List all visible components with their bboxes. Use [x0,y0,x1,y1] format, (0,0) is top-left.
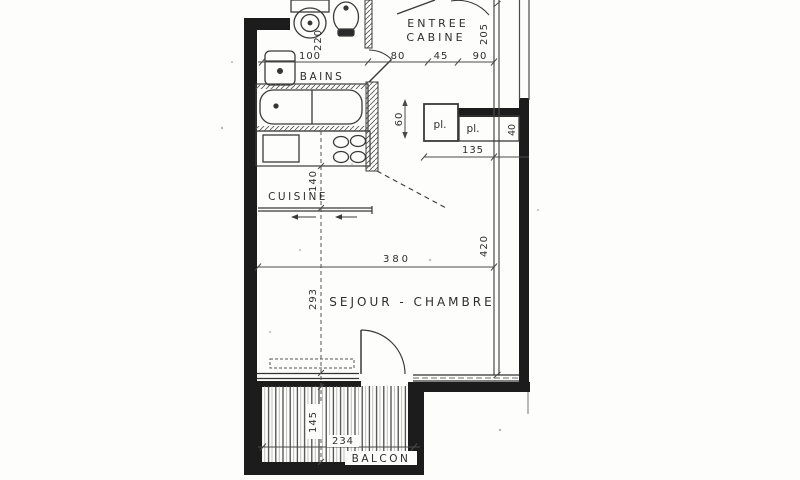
speck [351,163,353,165]
cabine-partition-dashed [377,171,448,209]
bath-door-leaf [369,60,392,83]
dim-140: 140 [308,170,319,192]
speck [269,331,271,333]
dim-100: 100 [299,51,321,62]
washbasin-drain [308,21,312,25]
wall-right-outer-fill [519,98,529,392]
arrow-down [402,132,407,139]
bathtub-drain [274,104,278,108]
room-label-cabine: CABINE [406,31,465,44]
speck [299,249,301,251]
closet-right-label: pl. [467,123,480,135]
bath-door-arc [369,50,392,60]
bathroom-basin-drain [278,69,283,74]
dim-135: 135 [462,145,484,156]
room-label-sejour-chambre: SEJOUR - CHAMBRE [329,295,494,309]
entry-door-leaf [397,0,435,14]
stove-burner-3 [334,152,349,163]
room-label-entree: ENTREE [407,17,468,30]
kitchen-slide-arrow-2-head [335,214,342,220]
balcony-decking [262,386,408,462]
dim-205: 205 [479,23,490,45]
dim-145: 145 [308,411,319,433]
bathroom-basin [265,51,295,85]
wall-left [244,18,257,388]
windows [257,359,519,381]
kitchen-slide-arrow-1-head [291,214,298,220]
room-label-balcon: BALCON [352,453,411,465]
bathtub-rim-top [256,84,368,89]
dim-293: 293 [308,288,319,310]
speck [429,259,431,261]
stove-burner-1 [334,137,349,148]
closet-left-label: pl. [434,119,447,131]
speck [537,209,539,211]
bathtub [256,84,370,131]
room-label-bains: BAINS [300,71,345,83]
dim-420: 420 [479,235,490,257]
dim-45: 45 [434,51,449,62]
dim-80: 80 [391,51,406,62]
doors [361,0,489,374]
arrow-up [402,99,407,106]
wall-bath-entree-upper [365,0,372,48]
radiator [270,359,354,368]
stove-burner-2 [351,136,366,147]
balcony [262,386,408,462]
dim-234: 234 [332,436,354,447]
speck [221,127,223,129]
floor-plan-drawing: ENTREE CABINE BAINS CUISINE SEJOUR - CHA… [0,0,800,480]
wall-balcony-left [244,384,262,472]
bathtub-rim-bottom [256,126,370,131]
dim-90: 90 [473,51,488,62]
dim-60: 60 [394,112,405,127]
balcony-door-arc [361,330,405,374]
dim-40: 40 [507,124,518,136]
kitchen-counter [256,131,370,166]
toilet [334,2,359,36]
entry-door-arc [451,0,489,15]
kitchen-partition [258,206,372,220]
speck [231,61,233,63]
toilet-seat [338,29,354,36]
kitchen-sink-unit [263,135,299,162]
stove-burner-4 [351,152,366,163]
dim-380: 380 [383,254,411,265]
dim-220: 220 [313,29,324,51]
washbasin-counter [291,0,329,12]
speck [499,429,501,431]
floor-plan-page: ENTREE CABINE BAINS CUISINE SEJOUR - CHA… [0,0,800,480]
wall-bottom-right [412,382,530,392]
toilet-flush [344,6,348,10]
